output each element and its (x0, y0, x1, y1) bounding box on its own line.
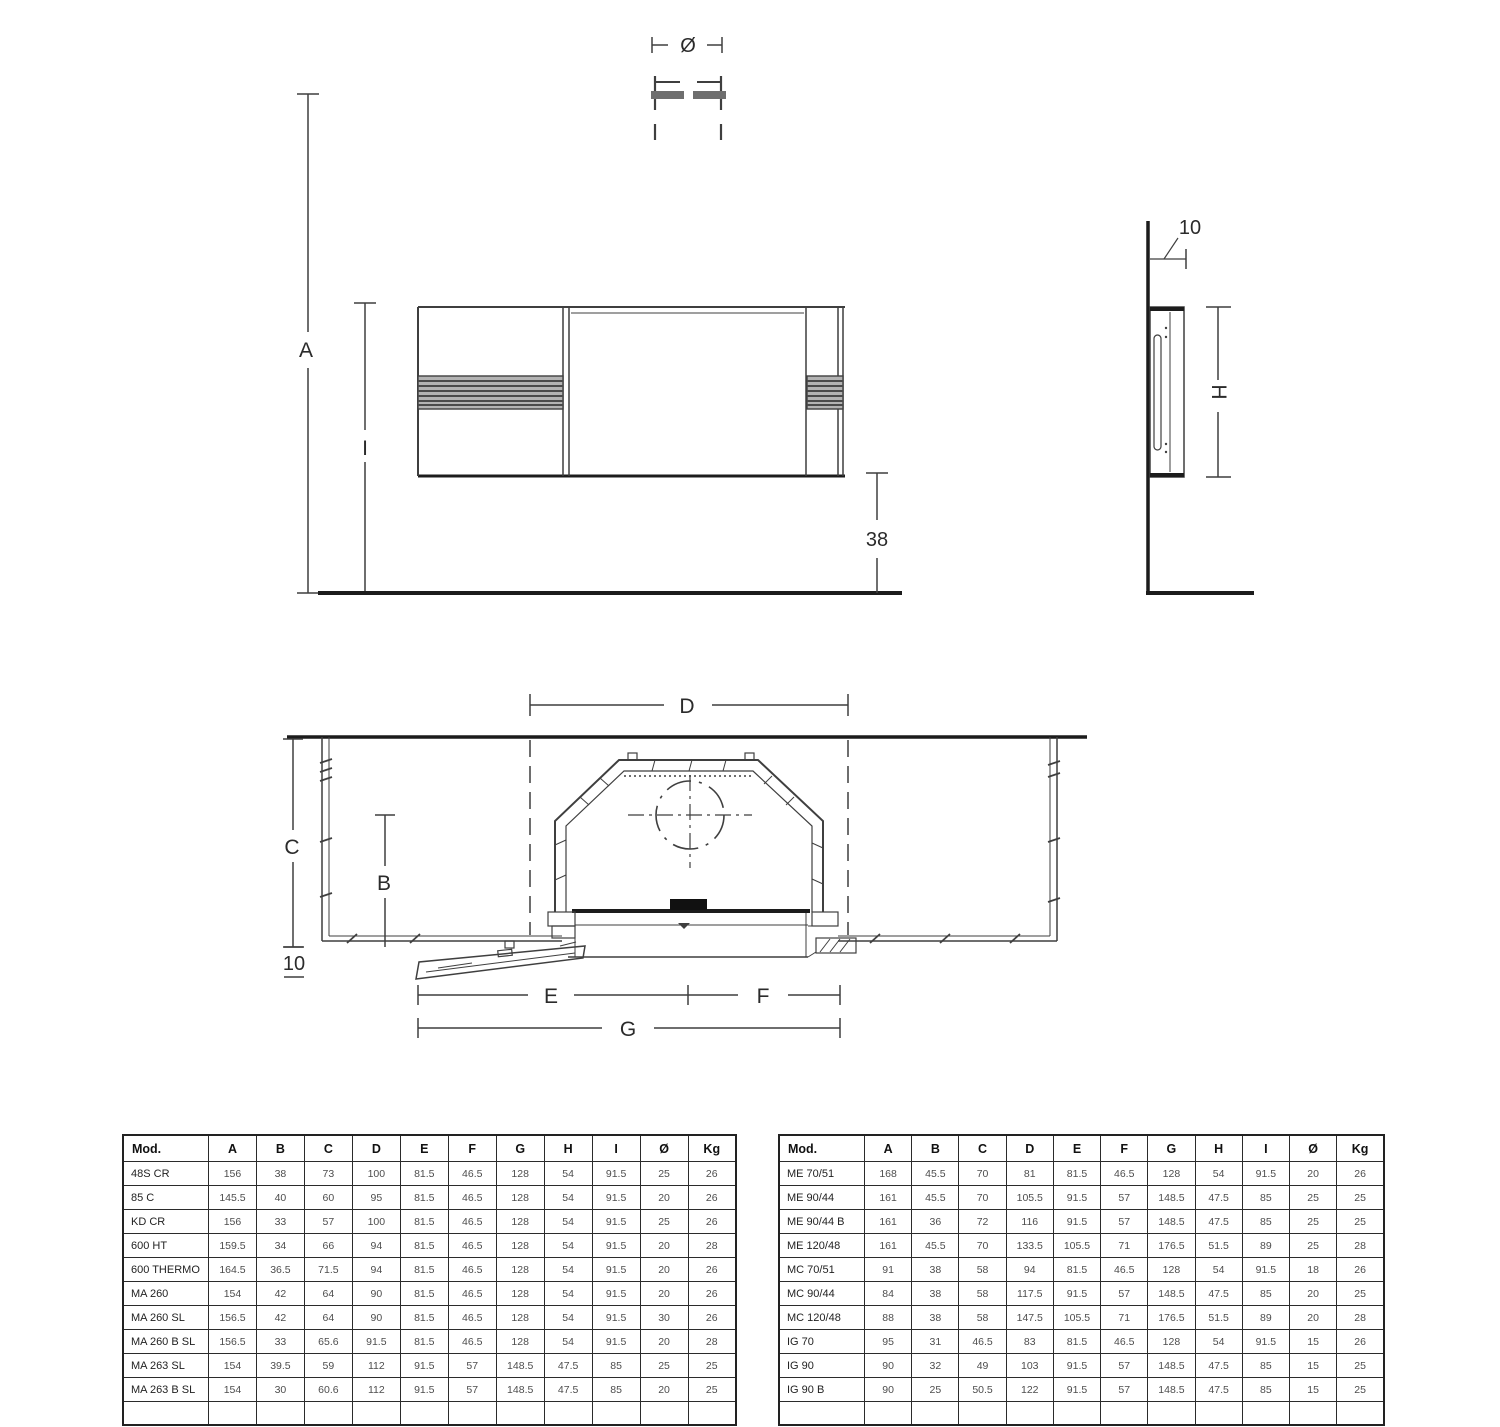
value-cell: 161 (865, 1234, 912, 1258)
value-cell (209, 1402, 257, 1426)
flue-circle (628, 775, 752, 868)
value-cell: 81 (1006, 1162, 1053, 1186)
column-header: B (912, 1135, 959, 1162)
hood-plan-outline (555, 753, 823, 912)
value-cell: 91.5 (1242, 1258, 1289, 1282)
value-cell: 103 (1006, 1354, 1053, 1378)
value-cell: 84 (865, 1282, 912, 1306)
value-cell: 95 (352, 1186, 400, 1210)
value-cell: 28 (1337, 1306, 1384, 1330)
value-cell: 128 (496, 1234, 544, 1258)
value-cell: 25 (1337, 1282, 1384, 1306)
model-cell: MA 260 B SL (123, 1330, 209, 1354)
value-cell: 20 (640, 1282, 688, 1306)
table-row: ME 70/5116845.5708181.546.51285491.52026 (779, 1162, 1384, 1186)
value-cell: 26 (688, 1306, 736, 1330)
value-cell (1053, 1402, 1100, 1426)
dimensions-table-right: Mod.ABCDEFGHIØKgME 70/5116845.5708181.54… (778, 1134, 1385, 1426)
table-row: MC 90/44843858117.591.557148.547.5852025 (779, 1282, 1384, 1306)
value-cell: 25 (640, 1354, 688, 1378)
value-cell: 47.5 (1195, 1354, 1242, 1378)
value-cell: 147.5 (1006, 1306, 1053, 1330)
value-cell: 46.5 (1101, 1258, 1148, 1282)
open-door (416, 912, 585, 979)
header-row: Mod.ABCDEFGHIØKg (779, 1135, 1384, 1162)
value-cell: 91.5 (592, 1258, 640, 1282)
value-cell: 45.5 (912, 1186, 959, 1210)
column-header: C (959, 1135, 1006, 1162)
value-cell: 54 (1195, 1162, 1242, 1186)
value-cell: 46.5 (1101, 1162, 1148, 1186)
value-cell: 38 (912, 1306, 959, 1330)
value-cell: 18 (1289, 1258, 1336, 1282)
table-row: IG 70953146.58381.546.51285491.51526 (779, 1330, 1384, 1354)
value-cell: 64 (304, 1306, 352, 1330)
value-cell: 128 (496, 1162, 544, 1186)
column-header: F (448, 1135, 496, 1162)
table-row: MA 26015442649081.546.51285491.52026 (123, 1282, 736, 1306)
value-cell: 15 (1289, 1330, 1336, 1354)
value-cell: 57 (1101, 1210, 1148, 1234)
value-cell: 28 (688, 1234, 736, 1258)
value-cell: 25 (688, 1378, 736, 1402)
value-cell: 15 (1289, 1378, 1336, 1402)
value-cell: 25 (1337, 1186, 1384, 1210)
value-cell: 91.5 (592, 1282, 640, 1306)
value-cell: 100 (352, 1210, 400, 1234)
value-cell: 59 (304, 1354, 352, 1378)
value-cell: 161 (865, 1210, 912, 1234)
value-cell: 148.5 (496, 1378, 544, 1402)
value-cell: 46.5 (448, 1186, 496, 1210)
table-row: IG 9090324910391.557148.547.5851525 (779, 1354, 1384, 1378)
value-cell: 47.5 (1195, 1282, 1242, 1306)
value-cell: 42 (256, 1306, 304, 1330)
value-cell: 47.5 (1195, 1186, 1242, 1210)
model-cell: 85 C (123, 1186, 209, 1210)
value-cell: 91.5 (1053, 1282, 1100, 1306)
value-cell: 54 (544, 1330, 592, 1354)
value-cell: 49 (959, 1354, 1006, 1378)
value-cell: 57 (448, 1378, 496, 1402)
value-cell: 95 (865, 1330, 912, 1354)
value-cell: 85 (1242, 1186, 1289, 1210)
value-cell: 168 (865, 1162, 912, 1186)
value-cell (400, 1402, 448, 1426)
value-cell: 164.5 (209, 1258, 257, 1282)
value-cell: 85 (1242, 1354, 1289, 1378)
value-cell: 81.5 (400, 1186, 448, 1210)
value-cell: 57 (304, 1210, 352, 1234)
value-cell: 91.5 (592, 1162, 640, 1186)
value-cell: 85 (592, 1378, 640, 1402)
value-cell: 81.5 (400, 1258, 448, 1282)
dim-label-c: C (284, 836, 299, 859)
value-cell: 105.5 (1053, 1234, 1100, 1258)
model-cell: MA 260 SL (123, 1306, 209, 1330)
value-cell (1242, 1402, 1289, 1426)
dim-label-f: F (757, 985, 770, 1008)
table-row: IG 90 B902550.512291.557148.547.5851525 (779, 1378, 1384, 1402)
value-cell: 46.5 (448, 1258, 496, 1282)
value-cell (1289, 1402, 1336, 1426)
value-cell: 89 (1242, 1306, 1289, 1330)
value-cell (640, 1402, 688, 1426)
value-cell: 91.5 (1053, 1210, 1100, 1234)
value-cell: 54 (544, 1282, 592, 1306)
table-row: 600 HT159.534669481.546.51285491.52028 (123, 1234, 736, 1258)
value-cell: 81.5 (400, 1234, 448, 1258)
value-cell: 91.5 (400, 1354, 448, 1378)
column-header: Kg (688, 1135, 736, 1162)
value-cell: 85 (1242, 1378, 1289, 1402)
value-cell (352, 1402, 400, 1426)
table-row: 48S CR156387310081.546.51285491.52526 (123, 1162, 736, 1186)
value-cell: 81.5 (1053, 1330, 1100, 1354)
value-cell: 128 (496, 1306, 544, 1330)
dim-label-h: H (1207, 384, 1230, 399)
value-cell: 26 (688, 1162, 736, 1186)
model-cell: IG 90 (779, 1354, 865, 1378)
value-cell: 65.6 (304, 1330, 352, 1354)
value-cell: 94 (352, 1234, 400, 1258)
value-cell: 47.5 (1195, 1378, 1242, 1402)
model-cell: ME 90/44 (779, 1186, 865, 1210)
value-cell: 54 (544, 1186, 592, 1210)
dim-label-d: D (679, 695, 694, 718)
clipped-row (779, 1402, 1384, 1426)
technical-drawing: A I 38 Ø (0, 0, 1500, 1130)
fireplace-hood-drawing: A I 38 Ø (0, 0, 1500, 1130)
value-cell: 72 (959, 1210, 1006, 1234)
value-cell: 91.5 (592, 1330, 640, 1354)
value-cell (1101, 1402, 1148, 1426)
table-row: 600 THERMO164.536.571.59481.546.51285491… (123, 1258, 736, 1282)
value-cell: 54 (544, 1306, 592, 1330)
value-cell: 71.5 (304, 1258, 352, 1282)
value-cell: 40 (256, 1186, 304, 1210)
value-cell: 20 (1289, 1162, 1336, 1186)
value-cell: 122 (1006, 1378, 1053, 1402)
table-row: MA 263 B SL1543060.611291.557148.547.585… (123, 1378, 736, 1402)
value-cell: 38 (912, 1282, 959, 1306)
value-cell: 45.5 (912, 1162, 959, 1186)
model-cell: ME 120/48 (779, 1234, 865, 1258)
value-cell: 94 (352, 1258, 400, 1282)
table-row: MC 120/48883858147.5105.571176.551.58920… (779, 1306, 1384, 1330)
value-cell: 176.5 (1148, 1306, 1195, 1330)
value-cell: 25 (640, 1210, 688, 1234)
value-cell (544, 1402, 592, 1426)
value-cell: 105.5 (1006, 1186, 1053, 1210)
dim-label-38: 38 (866, 529, 888, 551)
front-view: A I 38 Ø (297, 35, 902, 593)
value-cell: 34 (256, 1234, 304, 1258)
model-cell: 600 THERMO (123, 1258, 209, 1282)
column-header: A (865, 1135, 912, 1162)
value-cell: 25 (1289, 1210, 1336, 1234)
value-cell: 90 (352, 1306, 400, 1330)
value-cell: 20 (1289, 1282, 1336, 1306)
value-cell: 25 (1289, 1234, 1336, 1258)
value-cell: 33 (256, 1210, 304, 1234)
column-header: F (1101, 1135, 1148, 1162)
value-cell: 46.5 (448, 1234, 496, 1258)
value-cell: 47.5 (544, 1354, 592, 1378)
table-row: 85 C145.540609581.546.51285491.52026 (123, 1186, 736, 1210)
value-cell: 57 (448, 1354, 496, 1378)
table-row: MA 260 SL156.542649081.546.51285491.5302… (123, 1306, 736, 1330)
value-cell: 128 (1148, 1162, 1195, 1186)
value-cell: 88 (865, 1306, 912, 1330)
value-cell: 128 (496, 1210, 544, 1234)
value-cell: 26 (1337, 1258, 1384, 1282)
value-cell: 20 (640, 1234, 688, 1258)
value-cell: 145.5 (209, 1186, 257, 1210)
value-cell: 100 (352, 1162, 400, 1186)
model-cell: MA 263 B SL (123, 1378, 209, 1402)
value-cell: 57 (1101, 1354, 1148, 1378)
table-row: MA 260 B SL156.53365.691.581.546.5128549… (123, 1330, 736, 1354)
value-cell: 66 (304, 1234, 352, 1258)
value-cell: 91.5 (592, 1186, 640, 1210)
value-cell: 159.5 (209, 1234, 257, 1258)
value-cell: 148.5 (1148, 1378, 1195, 1402)
value-cell: 91.5 (1242, 1162, 1289, 1186)
value-cell: 54 (544, 1258, 592, 1282)
value-cell: 156 (209, 1162, 257, 1186)
value-cell: 47.5 (1195, 1210, 1242, 1234)
page: { "drawing": { "front": { "dim_a": "A", … (0, 0, 1500, 1427)
plan-view: D C B 10 E F G (283, 694, 1087, 1041)
value-cell: 38 (912, 1258, 959, 1282)
damper-handle (670, 899, 707, 910)
value-cell: 81.5 (400, 1306, 448, 1330)
value-cell (959, 1402, 1006, 1426)
value-cell: 128 (496, 1282, 544, 1306)
value-cell: 26 (688, 1258, 736, 1282)
value-cell (123, 1402, 209, 1426)
value-cell: 154 (209, 1354, 257, 1378)
value-cell: 148.5 (1148, 1210, 1195, 1234)
value-cell: 46.5 (448, 1162, 496, 1186)
table-row: MA 263 SL15439.55911291.557148.547.58525… (123, 1354, 736, 1378)
value-cell: 128 (1148, 1330, 1195, 1354)
value-cell: 20 (640, 1186, 688, 1210)
value-cell: 54 (544, 1162, 592, 1186)
dimension-10-side (1150, 238, 1186, 269)
value-cell: 47.5 (544, 1378, 592, 1402)
value-cell: 83 (1006, 1330, 1053, 1354)
value-cell: 30 (640, 1306, 688, 1330)
value-cell: 90 (865, 1378, 912, 1402)
value-cell: 71 (1101, 1306, 1148, 1330)
value-cell: 156 (209, 1210, 257, 1234)
value-cell: 25 (688, 1354, 736, 1378)
dimensions-table-left: Mod.ABCDEFGHIØKg48S CR156387310081.546.5… (122, 1134, 737, 1426)
value-cell: 70 (959, 1162, 1006, 1186)
value-cell: 91.5 (1053, 1354, 1100, 1378)
column-header: H (544, 1135, 592, 1162)
value-cell: 51.5 (1195, 1234, 1242, 1258)
value-cell (1006, 1402, 1053, 1426)
model-cell: KD CR (123, 1210, 209, 1234)
value-cell: 112 (352, 1378, 400, 1402)
value-cell: 154 (209, 1282, 257, 1306)
dim-label-g: G (620, 1018, 636, 1041)
value-cell (592, 1402, 640, 1426)
table-row: ME 90/4416145.570105.591.557148.547.5852… (779, 1186, 1384, 1210)
value-cell: 38 (256, 1162, 304, 1186)
value-cell: 25 (640, 1162, 688, 1186)
value-cell: 15 (1289, 1354, 1336, 1378)
value-cell: 161 (865, 1186, 912, 1210)
value-cell: 148.5 (1148, 1186, 1195, 1210)
column-header: Kg (1337, 1135, 1384, 1162)
value-cell: 46.5 (448, 1330, 496, 1354)
value-cell: 91.5 (592, 1306, 640, 1330)
value-cell: 148.5 (1148, 1282, 1195, 1306)
value-cell: 54 (544, 1234, 592, 1258)
column-header: G (1148, 1135, 1195, 1162)
column-header: E (1053, 1135, 1100, 1162)
table-row: MC 70/519138589481.546.51285491.51826 (779, 1258, 1384, 1282)
value-cell: 57 (1101, 1282, 1148, 1306)
value-cell: 81.5 (400, 1210, 448, 1234)
dim-label-a: A (299, 339, 313, 362)
column-header: C (304, 1135, 352, 1162)
value-cell (1148, 1402, 1195, 1426)
dim-label-diameter: Ø (680, 35, 696, 57)
column-header: I (1242, 1135, 1289, 1162)
model-cell: ME 90/44 B (779, 1210, 865, 1234)
dim-label-i: I (362, 437, 368, 460)
value-cell: 154 (209, 1378, 257, 1402)
column-header: E (400, 1135, 448, 1162)
value-cell: 116 (1006, 1210, 1053, 1234)
value-cell: 42 (256, 1282, 304, 1306)
value-cell: 91.5 (1053, 1186, 1100, 1210)
model-cell: IG 70 (779, 1330, 865, 1354)
column-header: D (352, 1135, 400, 1162)
value-cell: 20 (640, 1330, 688, 1354)
value-cell: 25 (1337, 1378, 1384, 1402)
value-cell (256, 1402, 304, 1426)
value-cell: 25 (1289, 1186, 1336, 1210)
value-cell: 81.5 (1053, 1258, 1100, 1282)
value-cell: 91.5 (400, 1378, 448, 1402)
value-cell: 71 (1101, 1234, 1148, 1258)
value-cell: 26 (688, 1210, 736, 1234)
value-cell: 89 (1242, 1234, 1289, 1258)
value-cell: 36.5 (256, 1258, 304, 1282)
value-cell: 90 (352, 1282, 400, 1306)
value-cell (304, 1402, 352, 1426)
value-cell: 60 (304, 1186, 352, 1210)
value-cell: 156.5 (209, 1330, 257, 1354)
value-cell: 91.5 (1242, 1330, 1289, 1354)
model-cell: 600 HT (123, 1234, 209, 1258)
value-cell: 128 (496, 1258, 544, 1282)
value-cell: 20 (1289, 1306, 1336, 1330)
value-cell: 91.5 (592, 1210, 640, 1234)
value-cell: 45.5 (912, 1234, 959, 1258)
column-header: Ø (640, 1135, 688, 1162)
value-cell: 20 (640, 1258, 688, 1282)
value-cell: 81.5 (400, 1282, 448, 1306)
right-vent-grille (807, 376, 843, 409)
dim-label-10-plan: 10 (283, 953, 305, 975)
value-cell: 105.5 (1053, 1306, 1100, 1330)
dim-label-10-side: 10 (1179, 217, 1201, 239)
value-cell: 128 (496, 1330, 544, 1354)
column-header: B (256, 1135, 304, 1162)
column-header: D (1006, 1135, 1053, 1162)
model-cell: MC 70/51 (779, 1258, 865, 1282)
value-cell: 26 (688, 1282, 736, 1306)
value-cell: 128 (1148, 1258, 1195, 1282)
value-cell: 90 (865, 1354, 912, 1378)
value-cell: 31 (912, 1330, 959, 1354)
value-cell: 64 (304, 1282, 352, 1306)
value-cell: 148.5 (496, 1354, 544, 1378)
right-bracket (808, 912, 856, 957)
dim-label-e: E (544, 985, 558, 1008)
value-cell: 51.5 (1195, 1306, 1242, 1330)
value-cell: 176.5 (1148, 1234, 1195, 1258)
value-cell: 81.5 (400, 1162, 448, 1186)
value-cell: 58 (959, 1282, 1006, 1306)
column-header: Ø (1289, 1135, 1336, 1162)
value-cell: 70 (959, 1186, 1006, 1210)
value-cell (779, 1402, 865, 1426)
column-header: Mod. (779, 1135, 865, 1162)
model-cell: ME 70/51 (779, 1162, 865, 1186)
column-header: G (496, 1135, 544, 1162)
left-vent-grille (418, 376, 563, 409)
value-cell: 32 (912, 1354, 959, 1378)
value-cell: 112 (352, 1354, 400, 1378)
value-cell (865, 1402, 912, 1426)
value-cell: 54 (1195, 1330, 1242, 1354)
value-cell: 26 (1337, 1162, 1384, 1186)
model-cell: MA 260 (123, 1282, 209, 1306)
value-cell: 57 (1101, 1186, 1148, 1210)
clipped-row (123, 1402, 736, 1426)
value-cell: 81.5 (400, 1330, 448, 1354)
value-cell: 58 (959, 1258, 1006, 1282)
column-header: A (209, 1135, 257, 1162)
value-cell: 46.5 (448, 1306, 496, 1330)
value-cell: 25 (912, 1378, 959, 1402)
value-cell: 91 (865, 1258, 912, 1282)
value-cell: 20 (640, 1378, 688, 1402)
value-cell: 26 (688, 1186, 736, 1210)
value-cell: 85 (592, 1354, 640, 1378)
value-cell: 148.5 (1148, 1354, 1195, 1378)
value-cell: 54 (544, 1210, 592, 1234)
firebox-front (568, 899, 810, 957)
value-cell: 91.5 (592, 1234, 640, 1258)
value-cell: 58 (959, 1306, 1006, 1330)
value-cell: 70 (959, 1234, 1006, 1258)
value-cell: 81.5 (1053, 1162, 1100, 1186)
value-cell: 25 (1337, 1354, 1384, 1378)
value-cell: 57 (1101, 1378, 1148, 1402)
value-cell: 54 (1195, 1258, 1242, 1282)
model-cell: 48S CR (123, 1162, 209, 1186)
model-cell: MC 90/44 (779, 1282, 865, 1306)
